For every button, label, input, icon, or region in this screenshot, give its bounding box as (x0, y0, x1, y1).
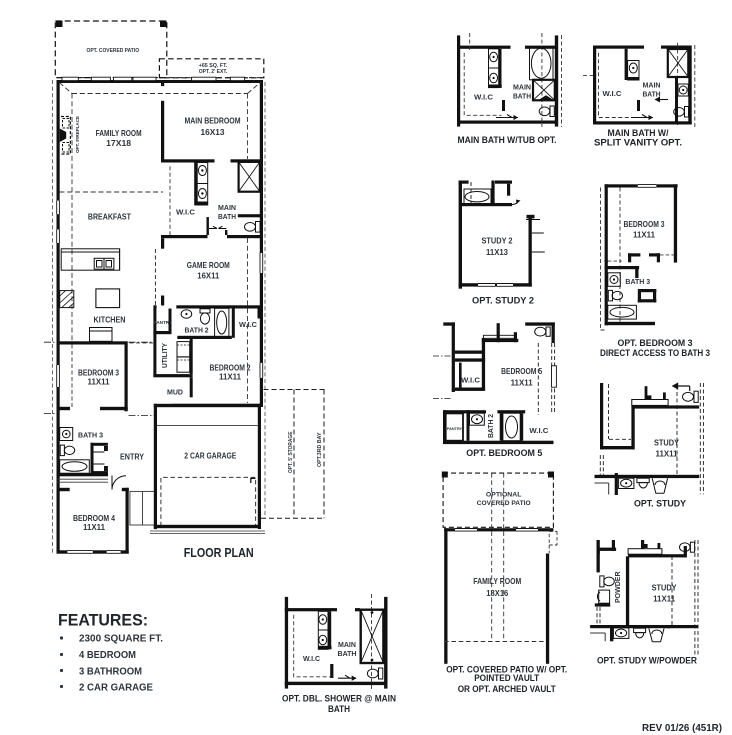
svg-text:11X11: 11X11 (653, 594, 675, 604)
svg-text:2 CAR GARAGE: 2 CAR GARAGE (79, 682, 153, 694)
svg-text:W.I.C: W.I.C (176, 210, 195, 217)
svg-text:MAIN BEDROOM: MAIN BEDROOM (185, 116, 241, 126)
svg-text:W.I.C: W.I.C (603, 91, 622, 98)
svg-text:FAMILY ROOM: FAMILY ROOM (96, 128, 142, 138)
svg-text:11X11: 11X11 (511, 378, 533, 388)
svg-text:MAIN: MAIN (338, 642, 356, 649)
svg-text:W.I.C: W.I.C (303, 656, 320, 663)
svg-text:BEDROOM 3: BEDROOM 3 (624, 219, 665, 229)
svg-text:POWDER: POWDER (615, 572, 622, 604)
svg-text:DIRECT ACCESS TO BATH 3: DIRECT ACCESS TO BATH 3 (600, 348, 710, 359)
svg-text:OPT. STUDY: OPT. STUDY (634, 499, 687, 510)
svg-text:4 BEDROOM: 4 BEDROOM (79, 649, 136, 661)
svg-text:OR OPT. ARCHED VAULT: OR OPT. ARCHED VAULT (458, 684, 556, 695)
svg-text:W.I.C: W.I.C (461, 378, 480, 385)
svg-text:11X11: 11X11 (219, 372, 241, 382)
svg-text:STUDY: STUDY (652, 583, 677, 593)
svg-text:2300 SQUARE FT.: 2300 SQUARE FT. (79, 633, 163, 645)
svg-text:11X11: 11X11 (656, 449, 678, 459)
svg-text:OPT. STUDY W/POWDER: OPT. STUDY W/POWDER (597, 656, 697, 667)
svg-text:OPT. 2' EXT.: OPT. 2' EXT. (199, 69, 228, 75)
svg-text:PANTRY: PANTRY (154, 320, 172, 325)
svg-text:2 CAR GARAGE: 2 CAR GARAGE (184, 451, 236, 461)
svg-text:MUD: MUD (167, 390, 183, 397)
svg-text:REV 01/26 (451R): REV 01/26 (451R) (642, 722, 722, 734)
svg-text:MAIN: MAIN (643, 83, 661, 90)
svg-text:MAIN: MAIN (218, 205, 236, 212)
svg-text:OPT. FIREPLACE: OPT. FIREPLACE (75, 116, 80, 153)
svg-text:BATH: BATH (643, 92, 661, 99)
svg-text:STUDY 2: STUDY 2 (482, 236, 513, 246)
svg-text:MAIN BATH W/TUB OPT.: MAIN BATH W/TUB OPT. (458, 135, 557, 146)
svg-text:OPT.3RD BAY: OPT.3RD BAY (317, 432, 323, 467)
svg-text:17X18: 17X18 (106, 138, 131, 148)
svg-text:BATH 3: BATH 3 (78, 433, 103, 440)
svg-text:FAMILY ROOM: FAMILY ROOM (473, 576, 521, 586)
svg-text:BATH 2: BATH 2 (488, 414, 495, 438)
svg-text:16X13: 16X13 (201, 127, 225, 137)
svg-text:KITCHEN: KITCHEN (94, 315, 126, 325)
svg-text:UTILITY: UTILITY (162, 343, 169, 368)
svg-text:STUDY: STUDY (654, 438, 679, 448)
svg-text:SPLIT VANITY OPT.: SPLIT VANITY OPT. (594, 138, 682, 149)
svg-text:16X11: 16X11 (197, 271, 219, 281)
svg-text:W.I.C: W.I.C (474, 95, 493, 102)
svg-text:OPT. BEDROOM 5: OPT. BEDROOM 5 (466, 448, 543, 459)
svg-text:OPT. COVERED PATIO: OPT. COVERED PATIO (87, 48, 140, 54)
svg-text:W.I.C: W.I.C (239, 322, 257, 329)
svg-text:11X13: 11X13 (486, 247, 508, 257)
svg-text:FEATURES:: FEATURES: (58, 611, 148, 630)
svg-text:18X16: 18X16 (486, 588, 508, 598)
svg-text:11X11: 11X11 (633, 230, 655, 240)
svg-text:BATH 3: BATH 3 (625, 279, 650, 286)
svg-text:MAIN: MAIN (513, 85, 531, 92)
svg-text:GAME ROOM: GAME ROOM (187, 260, 230, 270)
svg-text:FLOOR PLAN: FLOOR PLAN (184, 545, 254, 560)
svg-text:BATH: BATH (513, 94, 531, 101)
svg-text:BREAKFAST: BREAKFAST (88, 212, 132, 222)
svg-text:PANTRY: PANTRY (447, 427, 463, 431)
svg-text:BATH: BATH (338, 651, 357, 658)
svg-text:W.I.C: W.I.C (529, 428, 548, 435)
svg-text:BATH: BATH (218, 214, 236, 221)
svg-text:BATH: BATH (328, 704, 350, 715)
svg-text:OPT. 5' STORAGE: OPT. 5' STORAGE (288, 431, 294, 473)
svg-text:OPT. STUDY 2: OPT. STUDY 2 (472, 296, 534, 307)
svg-text:3 BATHROOM: 3 BATHROOM (79, 665, 142, 677)
svg-text:11X11: 11X11 (83, 522, 105, 532)
svg-text:OPT. DBL. SHOWER @ MAIN: OPT. DBL. SHOWER @ MAIN (282, 694, 396, 705)
svg-text:ENTRY: ENTRY (120, 452, 144, 462)
svg-text:BEDROOM 5: BEDROOM 5 (501, 366, 542, 376)
svg-text:BATH 2: BATH 2 (185, 328, 209, 335)
svg-text:POINTED VAULT: POINTED VAULT (474, 673, 539, 684)
svg-text:11X11: 11X11 (88, 377, 110, 387)
